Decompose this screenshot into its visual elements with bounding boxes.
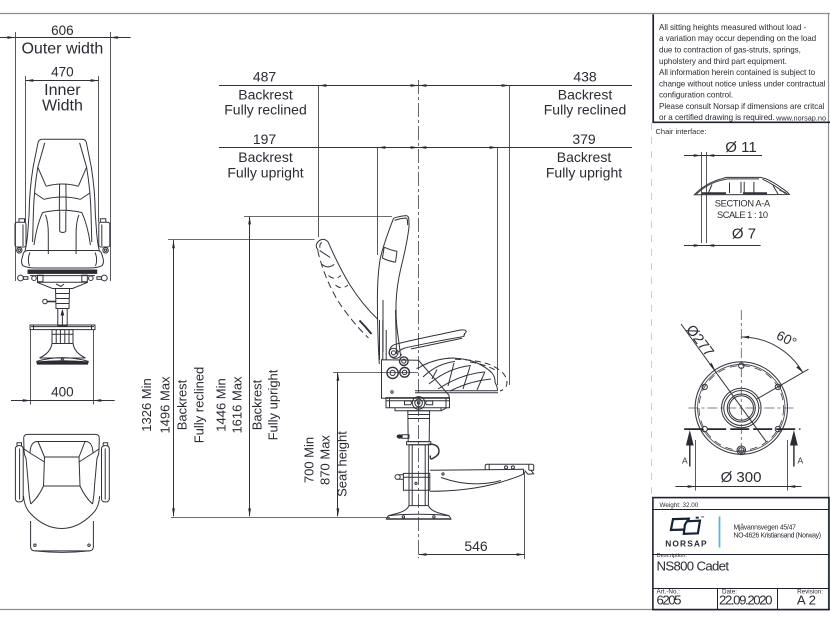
svg-text:22.09.2020: 22.09.2020 — [719, 593, 773, 608]
svg-text:438: 438 — [573, 69, 597, 85]
svg-text:400: 400 — [51, 384, 74, 399]
svg-text:Backrest: Backrest — [558, 87, 613, 103]
svg-text:™: ™ — [700, 515, 704, 520]
svg-text:NORSAP: NORSAP — [665, 539, 707, 549]
svg-text:1616 Max: 1616 Max — [230, 376, 245, 434]
svg-text:Backrest: Backrest — [250, 379, 265, 430]
svg-text:upholstery and third part equi: upholstery and third part equipment. — [659, 57, 787, 66]
svg-text:1326 Min: 1326 Min — [139, 378, 154, 431]
svg-text:Seat height: Seat height — [335, 431, 350, 497]
svg-text:606: 606 — [51, 23, 74, 38]
svg-text:Width: Width — [42, 98, 83, 115]
svg-text:Backrest: Backrest — [175, 379, 190, 430]
svg-text:Fully reclined: Fully reclined — [192, 367, 207, 444]
svg-text:configuration control.: configuration control. — [659, 91, 733, 100]
svg-text:NS800 Cadet: NS800 Cadet — [657, 558, 730, 573]
svg-text:Chair interface:: Chair interface: — [656, 127, 707, 136]
svg-text:1496 Max: 1496 Max — [158, 376, 173, 434]
svg-text:Backrest: Backrest — [557, 149, 612, 165]
svg-text:Backrest: Backrest — [238, 149, 293, 165]
svg-text:change without notice unless u: change without notice unless under contr… — [659, 79, 826, 88]
svg-text:Fully reclined: Fully reclined — [224, 102, 306, 118]
svg-text:www.norsap.no: www.norsap.no — [775, 114, 826, 123]
svg-text:700 Min: 700 Min — [302, 437, 317, 483]
svg-text:Fully reclined: Fully reclined — [544, 102, 626, 118]
svg-text:6205: 6205 — [657, 593, 682, 608]
svg-text:Fully upright: Fully upright — [227, 165, 303, 181]
svg-text:All information herein contain: All information herein contained is subj… — [659, 68, 816, 77]
svg-text:Ø 11: Ø 11 — [725, 139, 756, 156]
svg-text:546: 546 — [464, 538, 488, 554]
svg-text:379: 379 — [572, 131, 596, 147]
svg-text:Fully upright: Fully upright — [546, 165, 622, 181]
svg-text:Mjåvannsvegen 45/47: Mjåvannsvegen 45/47 — [734, 524, 797, 532]
svg-text:a variation may occur dependin: a variation may occur depending on the l… — [659, 34, 816, 43]
svg-text:due to contraction of gas-stru: due to contraction of gas-struts, spring… — [659, 46, 801, 55]
svg-text:Outer width: Outer width — [21, 41, 103, 58]
svg-text:or a certified drawing is requ: or a certified drawing is required. — [659, 113, 775, 122]
svg-text:A: A — [682, 456, 688, 466]
svg-text:SECTION A-A: SECTION A-A — [715, 198, 771, 208]
svg-text:1446 Min: 1446 Min — [214, 378, 229, 431]
svg-text:Please consult Norsap if dimen: Please consult Norsap if dimensions are … — [659, 102, 825, 111]
svg-text:Backrest: Backrest — [238, 87, 293, 103]
svg-text:Inner: Inner — [44, 82, 81, 99]
svg-text:SCALE 1 : 10: SCALE 1 : 10 — [717, 210, 768, 220]
svg-text:All sitting heights measured w: All sitting heights measured without loa… — [659, 23, 807, 32]
svg-text:NO-4626 Kristiansand (Norway): NO-4626 Kristiansand (Norway) — [734, 533, 822, 540]
svg-text:Weight: 32.00: Weight: 32.00 — [660, 502, 699, 509]
svg-text:487: 487 — [253, 69, 277, 85]
svg-text:197: 197 — [253, 131, 277, 147]
svg-text:Ø 7: Ø 7 — [732, 226, 756, 243]
svg-text:A 2: A 2 — [797, 593, 816, 608]
svg-text:Ø 300: Ø 300 — [721, 469, 762, 486]
svg-text:A: A — [798, 456, 804, 466]
svg-text:Fully upright: Fully upright — [266, 369, 281, 440]
svg-text:470: 470 — [51, 65, 74, 80]
svg-text:870 Max: 870 Max — [318, 435, 333, 485]
